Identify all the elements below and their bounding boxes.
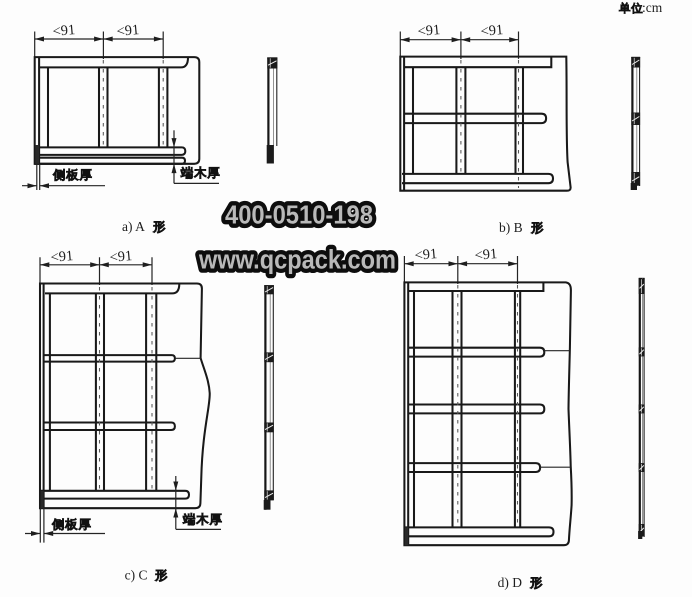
svg-text:400-0510-198: 400-0510-198 <box>225 202 373 230</box>
svg-text:a) A: a) A <box>122 219 145 234</box>
svg-text:<91: <91 <box>414 246 438 264</box>
svg-text:<91: <91 <box>480 22 504 40</box>
svg-text:<91: <91 <box>116 22 140 40</box>
svg-text:d) D: d) D <box>498 575 523 590</box>
svg-text:<91: <91 <box>474 246 498 264</box>
svg-text:c) C: c) C <box>125 568 148 583</box>
svg-text:<91: <91 <box>50 248 74 266</box>
svg-text:<91: <91 <box>417 22 441 40</box>
svg-text:www.qcpack.com: www.qcpack.com <box>198 245 396 275</box>
svg-text:b) B: b) B <box>499 220 523 235</box>
svg-text:<91: <91 <box>109 248 133 266</box>
svg-text:<91: <91 <box>52 22 76 40</box>
svg-text::cm: :cm <box>642 0 663 15</box>
